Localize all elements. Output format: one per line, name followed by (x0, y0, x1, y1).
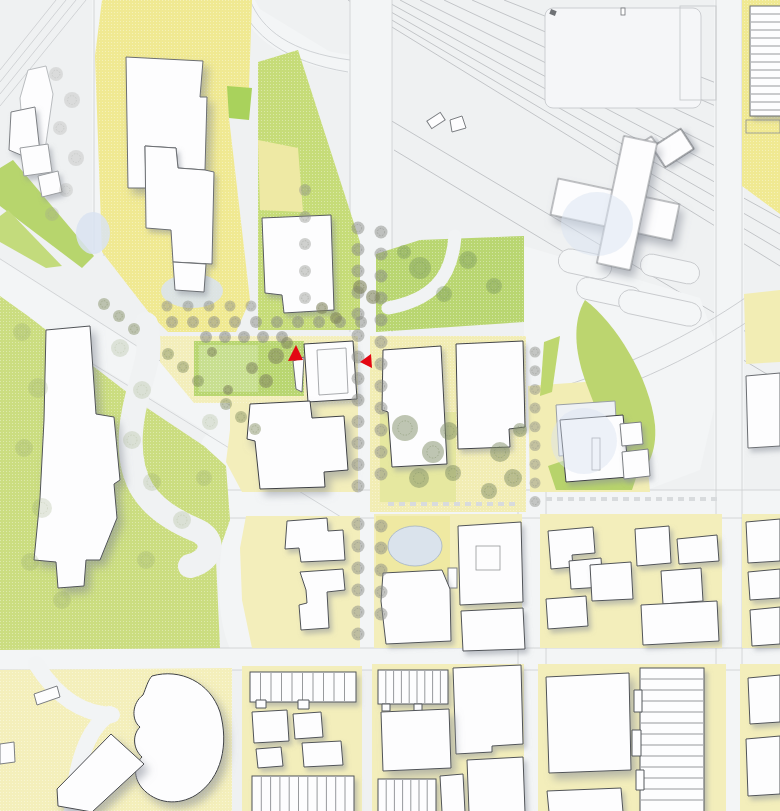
site-courtyard-inner (317, 348, 348, 395)
rowhouse-strip (252, 776, 354, 811)
building-small (38, 171, 62, 197)
paver-dash (678, 497, 684, 501)
building-O1 (748, 569, 780, 600)
paver-dash (689, 497, 695, 501)
paver-dash (557, 497, 563, 501)
building-N1 (641, 601, 719, 645)
paver-dash (443, 502, 449, 506)
rowhouse-tooth (256, 700, 266, 708)
rowhouse-tooth (636, 770, 644, 790)
building-M1-bar (448, 568, 457, 588)
lot-far-right-mid (744, 290, 780, 364)
building-BQ-right (453, 665, 523, 754)
paver-dash (579, 497, 585, 501)
building-N1 (590, 562, 633, 601)
building-BQ-small (440, 774, 465, 811)
paver-dash (546, 497, 552, 501)
green-quad-topleft (227, 86, 252, 120)
paver-dash (432, 502, 438, 506)
building-M1-tall (458, 522, 523, 605)
building-BP (256, 747, 283, 768)
rowhouse-strip (378, 670, 448, 704)
paver-dash (656, 497, 662, 501)
paver-dash (487, 502, 493, 506)
paver-dash (645, 497, 651, 501)
paver-dash (612, 497, 618, 501)
pond-topleft (76, 212, 110, 254)
building-BR-low (547, 788, 623, 811)
building-O1 (750, 607, 780, 646)
building-O1 (746, 519, 780, 563)
paver-dash (399, 502, 405, 506)
paver-dash (421, 502, 427, 506)
lot-mark (621, 8, 625, 15)
building-M1-big (381, 570, 451, 644)
paver-dash (667, 497, 673, 501)
paver-dash (711, 497, 717, 501)
paver-dash (465, 502, 471, 506)
station-parking-lot (545, 8, 701, 108)
street-tree-row (530, 347, 541, 508)
building-N1 (635, 526, 671, 566)
pond-station (561, 192, 633, 256)
building-BP (302, 741, 343, 767)
bus-loop (638, 252, 701, 286)
building-N1 (677, 535, 719, 564)
rowhouse-column (640, 668, 704, 811)
site-plan-map (0, 0, 780, 811)
paver-dash (410, 502, 416, 506)
building-N1 (546, 596, 588, 629)
rowhouse-tooth (298, 700, 309, 709)
yellow-pocket-wedge (258, 140, 303, 212)
building-M1-low (461, 608, 525, 651)
building-BS (746, 736, 780, 796)
building-BS (748, 675, 780, 724)
building-main-foot (173, 262, 206, 292)
building-BP (293, 712, 323, 739)
rowhouse-tooth (382, 704, 390, 711)
paver-dash (700, 497, 706, 501)
building-BR-big (546, 673, 631, 773)
building-I-small (620, 422, 643, 446)
pond-M1 (388, 526, 442, 566)
building-BQ-mid (381, 709, 451, 771)
site-plan-canvas (0, 0, 780, 811)
rowhouse-tooth (632, 730, 641, 756)
paver-dash (454, 502, 460, 506)
paver-dash (634, 497, 640, 501)
building-BQ-corner (467, 757, 525, 811)
railyard-shed (427, 112, 445, 128)
rowhouse-strip (250, 672, 356, 702)
railyard-shed (652, 129, 694, 168)
building-striped-far-right (750, 6, 780, 116)
paver-dash (568, 497, 574, 501)
building-BP (252, 710, 289, 743)
paver-dash (601, 497, 607, 501)
pond-circle-I (551, 408, 617, 474)
building-I-small (622, 449, 650, 479)
paver-dash (623, 497, 629, 501)
building-small (20, 144, 52, 176)
paver-dash (590, 497, 596, 501)
rowhouse-tooth (634, 690, 642, 712)
railyard-shed (450, 116, 466, 132)
building-far-right-mid (746, 373, 780, 448)
paver-dash (476, 502, 482, 506)
paver-dash (498, 502, 504, 506)
paver-dash (509, 502, 515, 506)
paver-dash (388, 502, 394, 506)
building-N1 (661, 568, 703, 604)
map-root (0, 0, 780, 811)
building-BL-edge (0, 742, 15, 764)
